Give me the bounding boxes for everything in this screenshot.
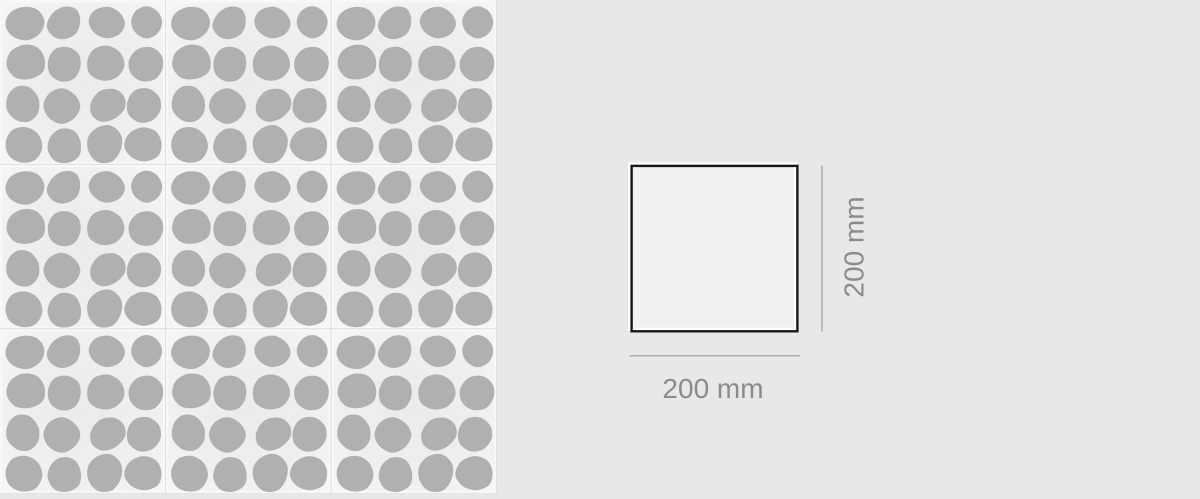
svg-text:200 mm: 200 mm	[662, 373, 763, 404]
svg-text:200 mm: 200 mm	[838, 196, 869, 297]
